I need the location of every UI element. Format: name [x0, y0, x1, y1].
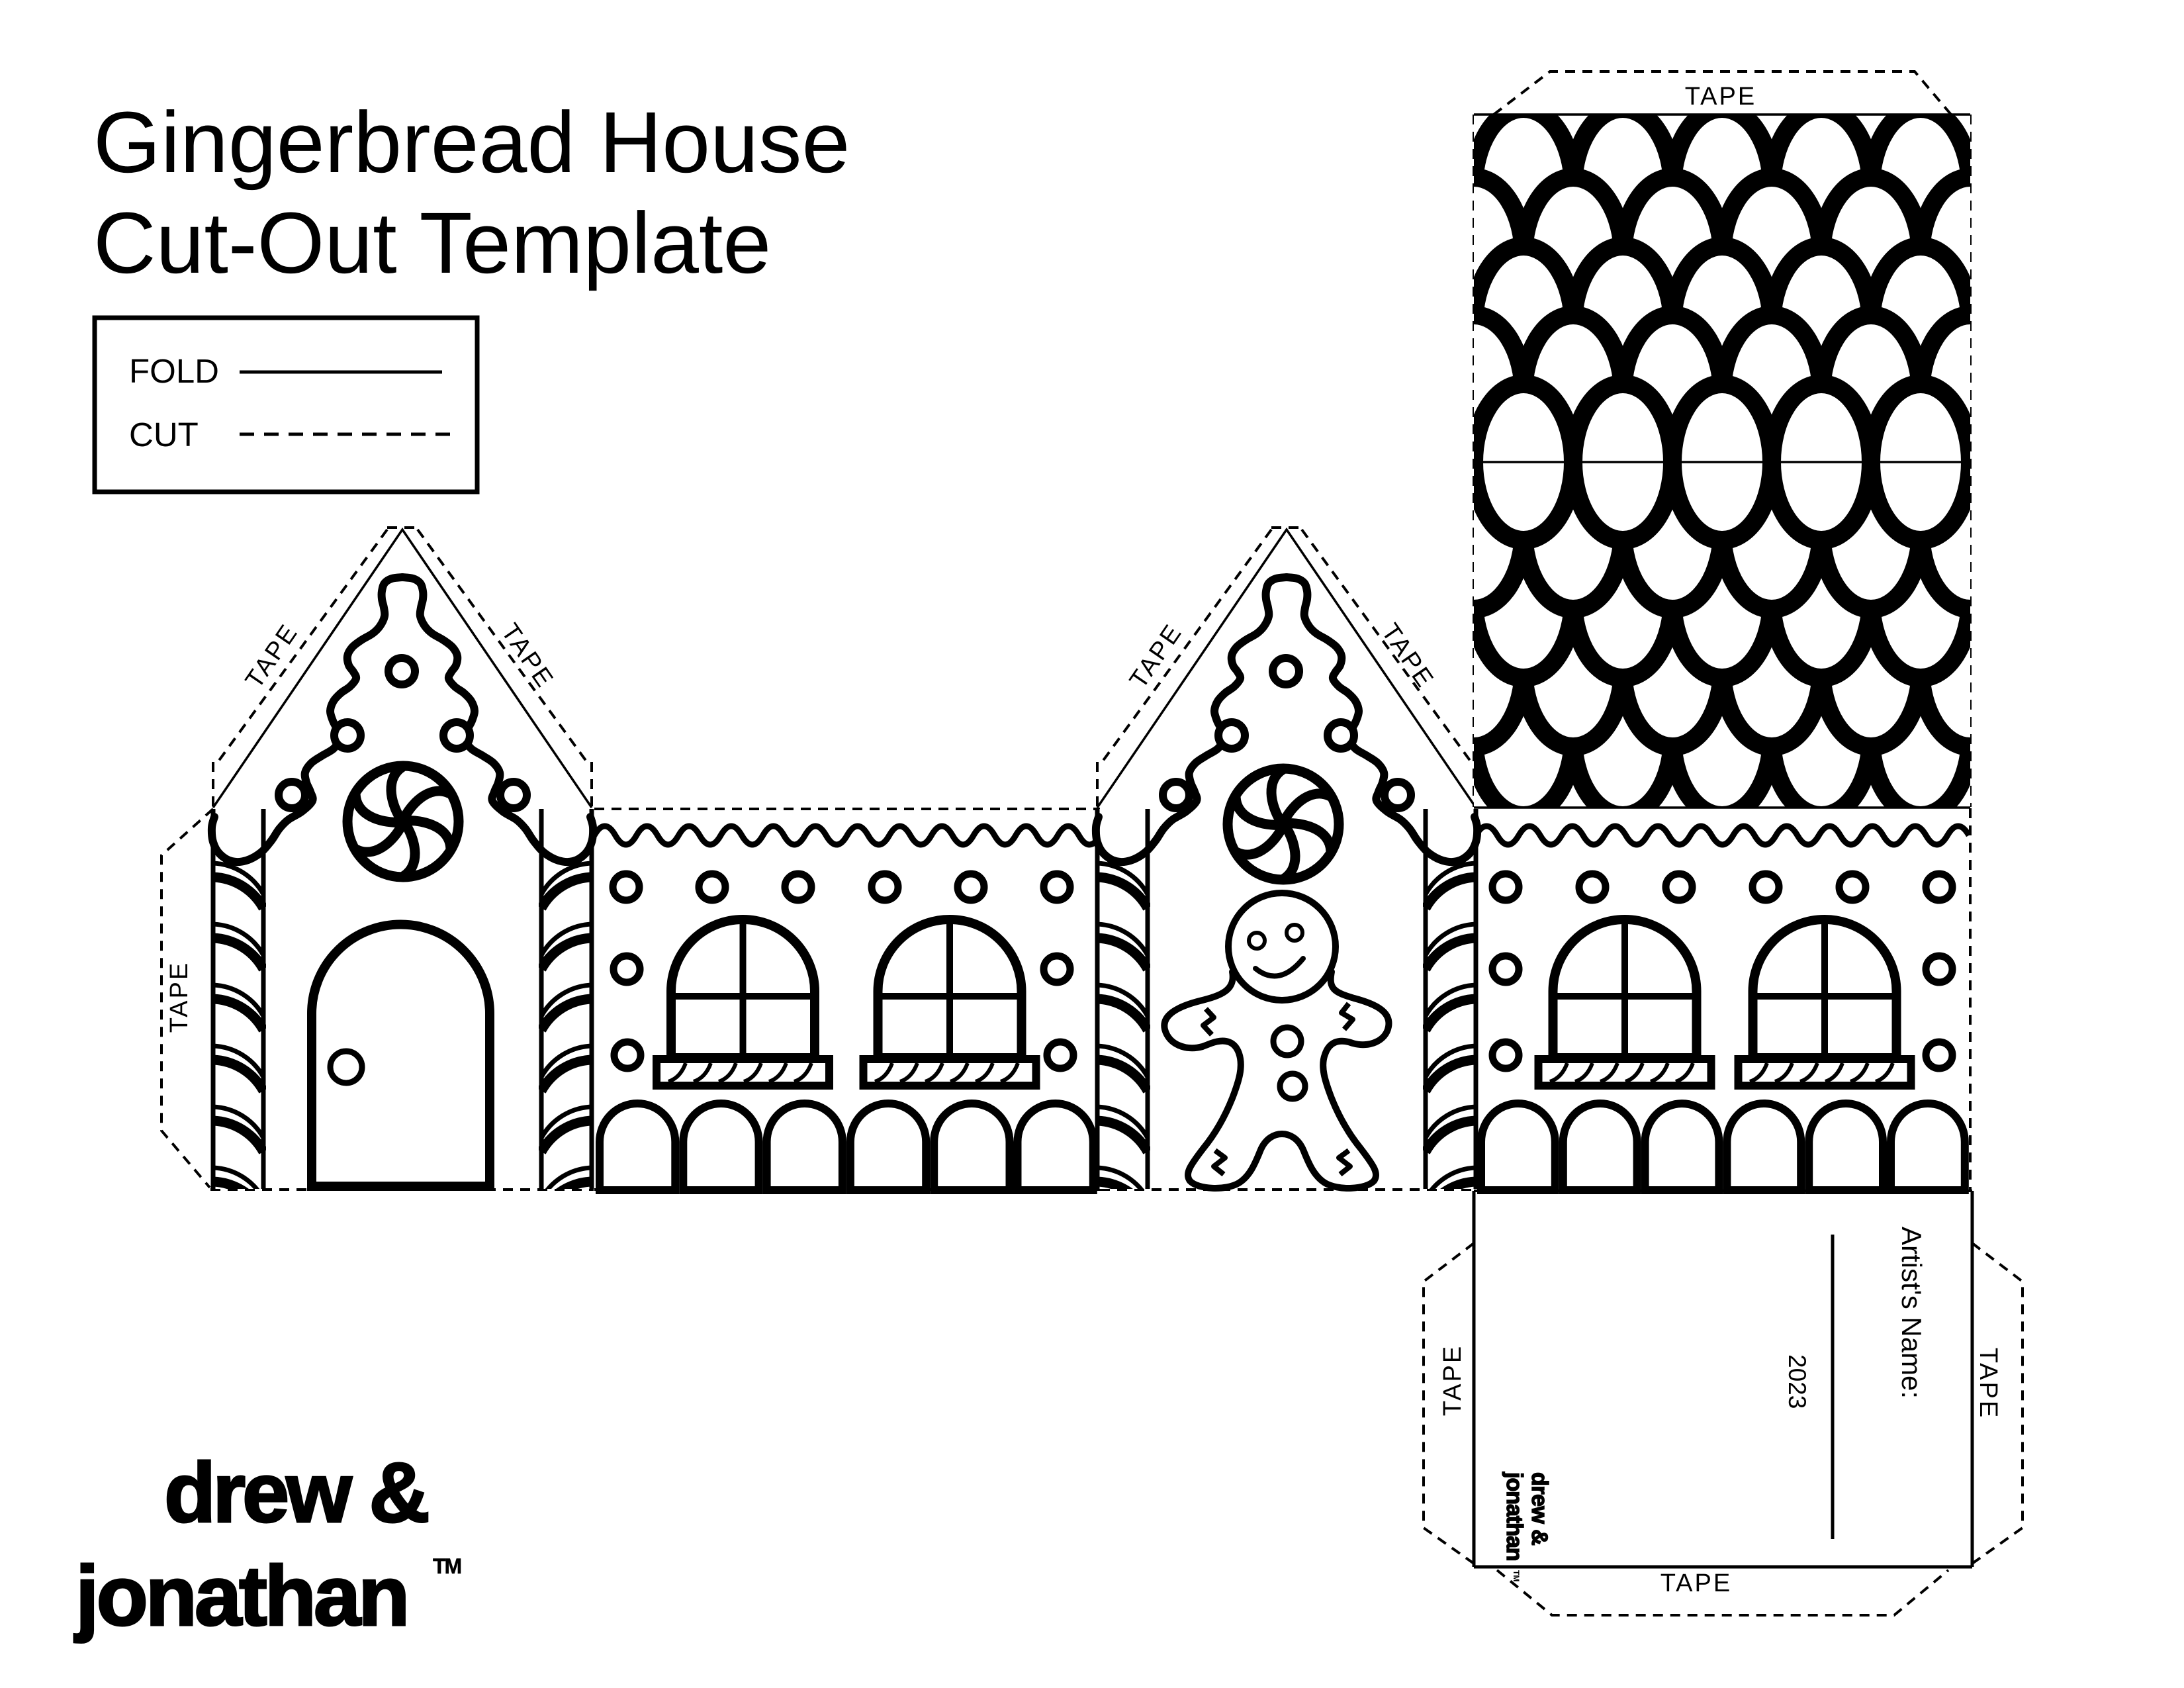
svg-text:TM: TM — [1512, 1570, 1521, 1581]
svg-text:2023: 2023 — [1784, 1354, 1811, 1409]
svg-text:Artist's Name:: Artist's Name: — [1896, 1227, 1927, 1399]
svg-text:jonathan: jonathan — [74, 1549, 407, 1644]
svg-text:CUT: CUT — [129, 416, 199, 453]
svg-text:FOLD: FOLD — [129, 352, 219, 390]
svg-text:TAPE: TAPE — [165, 961, 193, 1033]
svg-text:TAPE: TAPE — [1661, 1570, 1732, 1597]
svg-text:TM: TM — [433, 1554, 461, 1578]
svg-text:jonathan: jonathan — [1502, 1472, 1527, 1561]
svg-text:Cut-Out Template: Cut-Out Template — [93, 194, 771, 291]
svg-text:TAPE: TAPE — [1974, 1348, 2002, 1419]
svg-text:TAPE: TAPE — [1685, 83, 1756, 111]
svg-text:Gingerbread House: Gingerbread House — [93, 93, 850, 191]
svg-text:drew &: drew & — [164, 1446, 428, 1540]
svg-text:drew &: drew & — [1527, 1472, 1552, 1545]
svg-text:TAPE: TAPE — [1439, 1344, 1467, 1416]
